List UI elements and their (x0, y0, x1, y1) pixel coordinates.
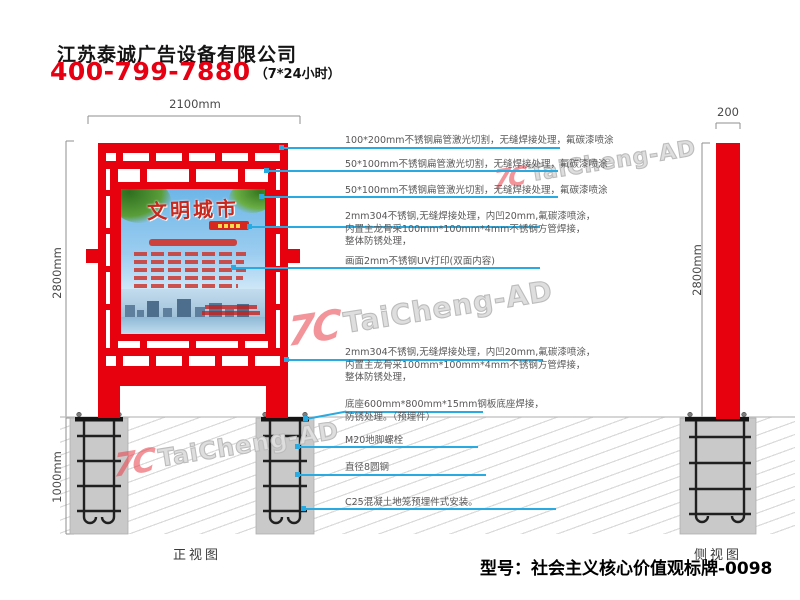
hotline-number: 400-799-7880 (50, 59, 251, 85)
leader-dot (279, 145, 284, 150)
poster-text-row (134, 276, 243, 280)
poster-badge (209, 221, 249, 230)
leader-dot (295, 444, 300, 449)
leader-dot (303, 416, 308, 421)
annotation-lower-panel: 2mm304不锈钢,无缝焊接处理，内凹20mm,氟碳漆喷涂， 内置主龙骨采100… (345, 347, 595, 385)
leader-dot (247, 224, 252, 229)
leader-dot (231, 265, 236, 270)
leader-line (297, 474, 486, 476)
poster-signature-text (205, 305, 257, 309)
dim-width-side: 200 (706, 105, 750, 119)
leader-dot (301, 506, 306, 511)
taicheng-logo-icon: 7C (287, 305, 338, 354)
front-view-caption: 正视图 (157, 544, 237, 563)
annotation-frame-panel: 2mm304不锈钢,无缝焊接处理，内凹20mm,氟碳漆喷涂， 内置主龙骨采100… (345, 211, 595, 249)
hotline-row: 400-799-7880 （7*24小时） (50, 59, 341, 85)
watermark: 7C TaiCheng-AD (285, 271, 556, 352)
watermark-text: TaiCheng-AD (342, 277, 555, 338)
annotation-top-tube: 100*200mm不锈钢扁管激光切割，无缝焊接处理，氟碳漆喷涂 (345, 135, 614, 148)
dim-foundation-front: 1000mm (50, 442, 64, 512)
leader-dot (295, 472, 300, 477)
poster-artwork: 文明城市 (121, 189, 265, 334)
ground-hatch (60, 417, 795, 534)
dim-height-side: 2800mm (690, 235, 704, 305)
annotation-round-steel: 直径8圆钢 (345, 462, 389, 475)
annotation-upper-tube: 50*100mm不锈钢扁管激光切割，无缝焊接处理，氟碳漆喷涂 (345, 159, 607, 172)
poster-text-row (134, 252, 246, 256)
poster-text-row (134, 260, 244, 264)
annotation-anchor-bolt: M20地脚螺栓 (345, 435, 403, 448)
annotation-uv-print: 画面2mm不锈钢UV打印(双面内容) (345, 256, 495, 269)
annotation-lattice-tube: 50*100mm不锈钢扁管激光切割，无缝焊接处理，氟碳漆喷涂 (345, 185, 607, 198)
poster-subtitle-bar (149, 239, 237, 246)
dim-width-front: 2100mm (150, 97, 240, 111)
poster-water (121, 317, 265, 334)
poster-signature-text (202, 311, 260, 315)
leader-dot (259, 194, 264, 199)
hotline-note: （7*24小时） (255, 65, 341, 85)
poster-text-row (134, 268, 246, 272)
poster-text-row (134, 284, 238, 288)
annotation-base-plate: 底座600mm*800mm*15mm钢板底座焊接， 防锈处理。（预埋件） (345, 399, 544, 424)
model-number: 型号：社会主义核心价值观标牌-0098 (480, 554, 770, 579)
spec-sheet-page: { "header": { "company": "江苏泰诚广告设备有限公司",… (0, 0, 800, 600)
leader-dot (284, 357, 289, 362)
side-post (716, 143, 740, 419)
leader-dot (264, 168, 269, 173)
dim-height-front: 2800mm (50, 238, 64, 308)
annotation-concrete: C25混凝土地笼预埋件式安装。 (345, 497, 478, 510)
